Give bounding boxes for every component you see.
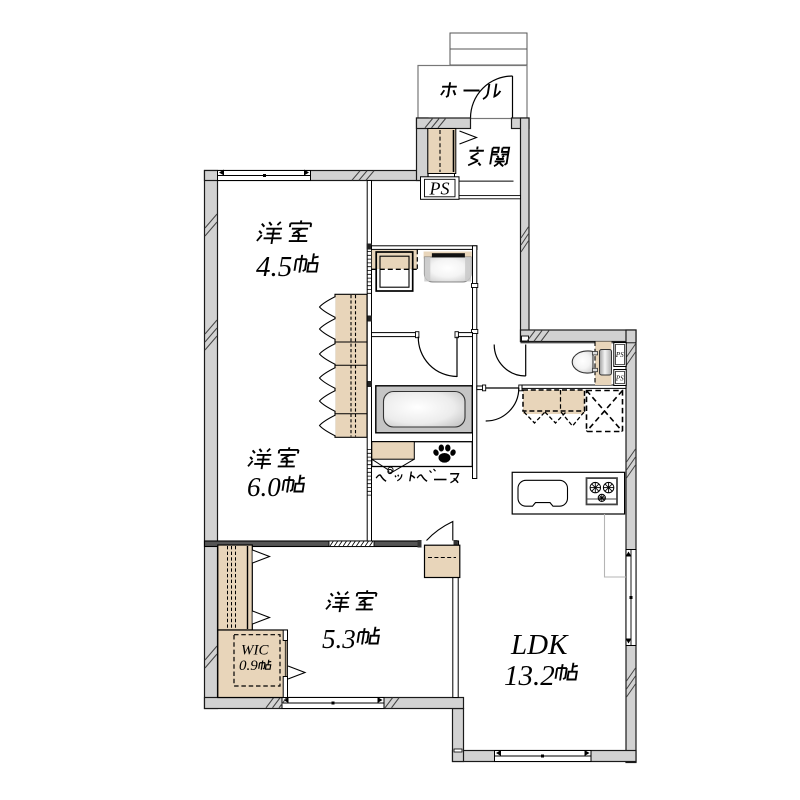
svg-text:13.2: 13.2: [504, 660, 555, 692]
svg-text:4.5: 4.5: [256, 251, 292, 283]
svg-text:5.3: 5.3: [322, 624, 356, 654]
svg-text:0.9: 0.9: [239, 658, 258, 674]
svg-text:6.0: 6.0: [247, 472, 281, 502]
svg-text:PS: PS: [615, 351, 624, 359]
svg-text:LDK: LDK: [510, 629, 569, 661]
svg-text:PS: PS: [615, 375, 624, 383]
svg-text:PS: PS: [429, 179, 450, 199]
svg-text:WIC: WIC: [241, 643, 269, 659]
